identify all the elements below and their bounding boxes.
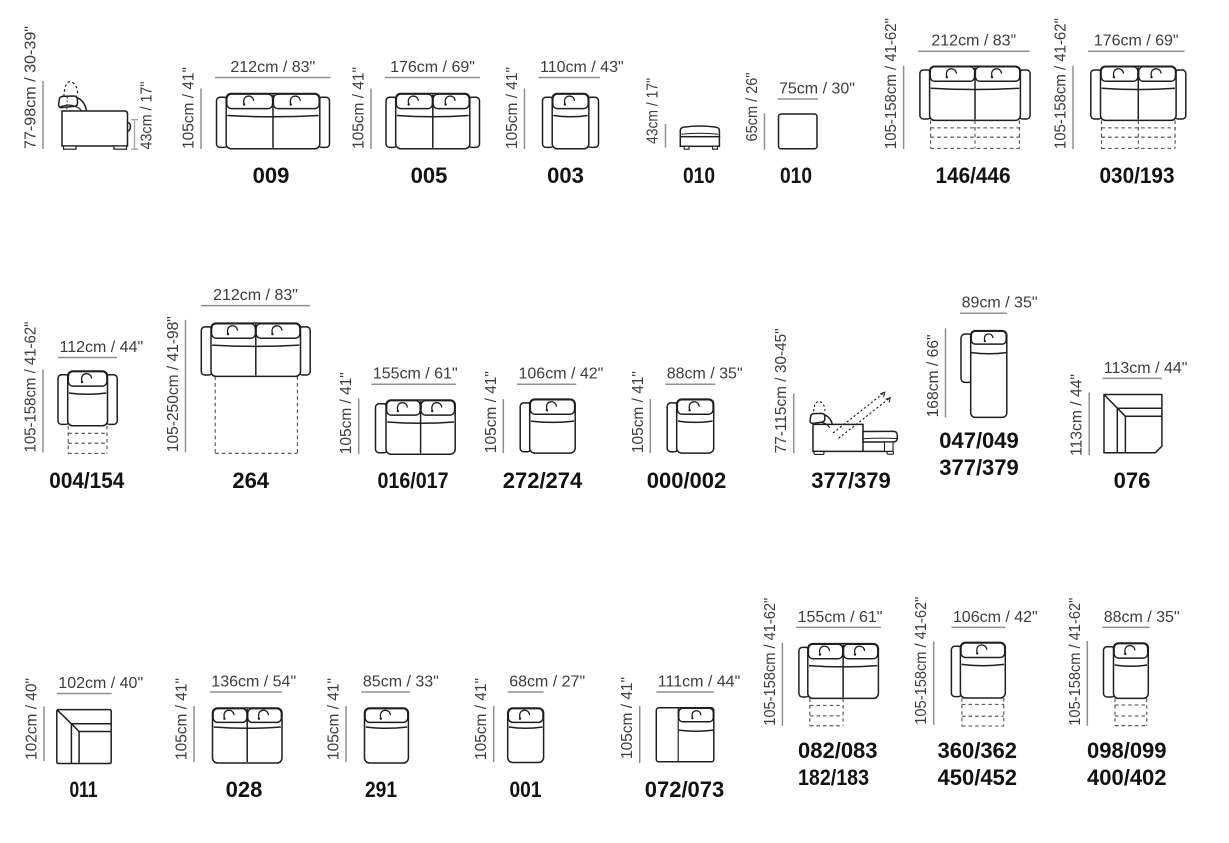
svg-text:105-158cm / 41-62": 105-158cm / 41-62": [883, 18, 900, 149]
svg-text:072/073: 072/073: [645, 777, 725, 802]
svg-text:028: 028: [226, 777, 263, 802]
svg-text:88cm / 35": 88cm / 35": [667, 366, 743, 383]
svg-text:113cm / 44": 113cm / 44": [1069, 374, 1086, 456]
svg-text:77-115cm / 30-45": 77-115cm / 30-45": [773, 328, 790, 453]
svg-text:450/452: 450/452: [938, 765, 1018, 790]
svg-text:77-98cm / 30-39": 77-98cm / 30-39": [23, 26, 40, 149]
svg-text:65cm / 26": 65cm / 26": [744, 73, 761, 142]
svg-text:291: 291: [365, 777, 397, 802]
svg-text:176cm / 69": 176cm / 69": [390, 59, 475, 76]
svg-text:098/099: 098/099: [1087, 738, 1167, 763]
svg-text:88cm / 35": 88cm / 35": [1104, 609, 1180, 626]
svg-text:43cm / 17": 43cm / 17": [139, 82, 156, 150]
svg-text:047/049: 047/049: [939, 428, 1019, 453]
svg-text:105cm / 41": 105cm / 41": [473, 678, 490, 760]
svg-text:005: 005: [411, 163, 448, 188]
svg-text:75cm / 30": 75cm / 30": [779, 81, 855, 98]
svg-text:136cm / 54": 136cm / 54": [211, 674, 296, 691]
svg-text:85cm / 33": 85cm / 33": [363, 674, 439, 691]
svg-text:102cm / 40": 102cm / 40": [58, 675, 143, 692]
svg-text:105cm / 41": 105cm / 41": [174, 678, 191, 760]
svg-text:106cm / 42": 106cm / 42": [953, 609, 1038, 626]
svg-text:212cm / 83": 212cm / 83": [931, 33, 1016, 50]
svg-text:105cm / 41": 105cm / 41": [181, 67, 198, 149]
svg-text:105-158cm / 41-62": 105-158cm / 41-62": [762, 598, 779, 726]
svg-text:272/274: 272/274: [503, 468, 583, 493]
svg-text:105-158cm / 41-62": 105-158cm / 41-62": [1067, 598, 1084, 726]
svg-text:105cm / 41": 105cm / 41": [619, 677, 636, 759]
svg-text:111cm / 44": 111cm / 44": [658, 674, 740, 691]
svg-text:105cm / 41": 105cm / 41": [630, 371, 647, 453]
svg-text:212cm / 83": 212cm / 83": [230, 59, 315, 76]
svg-text:105-158cm / 41-62": 105-158cm / 41-62": [23, 322, 40, 453]
svg-text:010: 010: [780, 163, 812, 188]
svg-text:377/379: 377/379: [811, 468, 891, 493]
svg-text:182/183: 182/183: [798, 765, 869, 790]
svg-text:011: 011: [70, 777, 98, 802]
svg-text:43cm / 17": 43cm / 17": [645, 78, 662, 144]
svg-text:105-158cm / 41-62": 105-158cm / 41-62": [913, 597, 930, 725]
svg-text:360/362: 360/362: [938, 738, 1018, 763]
svg-text:146/446: 146/446: [936, 163, 1011, 188]
svg-text:102cm / 40": 102cm / 40": [24, 678, 41, 760]
svg-text:112cm / 44": 112cm / 44": [60, 339, 144, 356]
svg-text:89cm / 35": 89cm / 35": [962, 295, 1038, 312]
svg-text:105cm / 41": 105cm / 41": [326, 678, 343, 760]
svg-text:105cm / 41": 105cm / 41": [504, 67, 521, 149]
svg-text:076: 076: [1114, 468, 1151, 493]
svg-text:105-250cm / 41-98": 105-250cm / 41-98": [165, 316, 182, 452]
svg-text:377/379: 377/379: [939, 455, 1019, 480]
svg-text:105cm / 41": 105cm / 41": [338, 372, 355, 454]
svg-text:030/193: 030/193: [1100, 163, 1175, 188]
svg-text:003: 003: [547, 163, 584, 188]
svg-text:000/002: 000/002: [647, 468, 727, 493]
svg-text:105cm / 41": 105cm / 41": [483, 371, 500, 453]
svg-text:176cm / 69": 176cm / 69": [1094, 33, 1179, 50]
svg-text:400/402: 400/402: [1087, 765, 1167, 790]
svg-text:155cm / 61": 155cm / 61": [798, 609, 883, 626]
svg-text:082/083: 082/083: [798, 738, 878, 763]
svg-text:016/017: 016/017: [378, 468, 449, 493]
svg-text:105-158cm / 41-62": 105-158cm / 41-62": [1053, 18, 1070, 149]
svg-text:155cm / 61": 155cm / 61": [373, 366, 458, 383]
svg-text:212cm / 83": 212cm / 83": [213, 287, 298, 304]
svg-text:010: 010: [683, 163, 715, 188]
svg-text:105cm / 41": 105cm / 41": [351, 67, 368, 149]
svg-text:001: 001: [510, 777, 542, 802]
svg-text:168cm / 66": 168cm / 66": [925, 334, 942, 417]
svg-text:68cm / 27": 68cm / 27": [509, 674, 585, 691]
svg-text:264: 264: [232, 468, 269, 493]
svg-text:113cm / 44": 113cm / 44": [1104, 360, 1188, 377]
svg-text:009: 009: [253, 163, 290, 188]
svg-text:106cm / 42": 106cm / 42": [519, 366, 604, 383]
svg-text:110cm / 43": 110cm / 43": [540, 59, 624, 76]
svg-text:004/154: 004/154: [49, 468, 125, 493]
